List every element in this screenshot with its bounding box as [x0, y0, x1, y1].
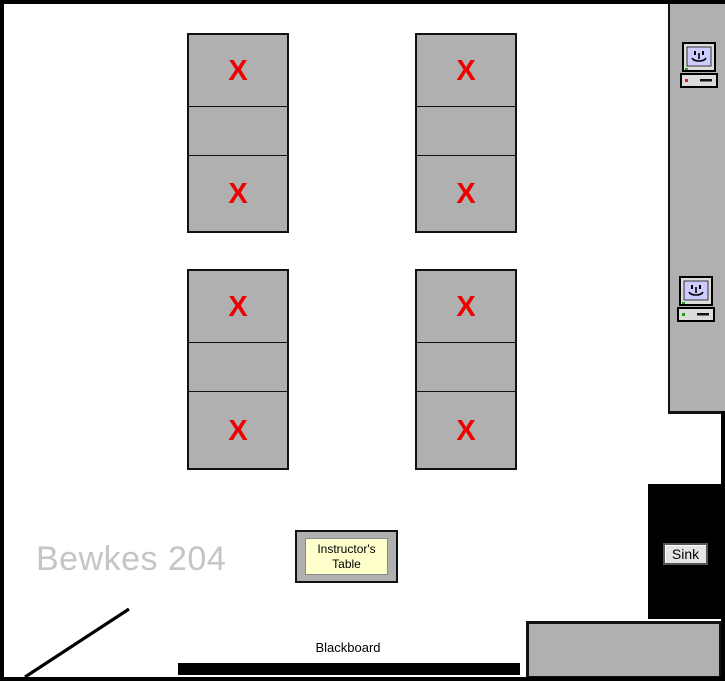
wall-bottom: [0, 677, 725, 681]
seat: X: [189, 35, 287, 107]
room-floor-plan: X X X X X X X X: [0, 0, 725, 681]
room-name-label: Bewkes 204: [36, 540, 226, 579]
wall-top: [0, 0, 725, 4]
instructor-table: Instructor's Table: [295, 530, 398, 583]
wall-left: [0, 0, 4, 681]
classic-mac-icon: [677, 276, 715, 323]
seat: [189, 343, 287, 392]
sink-label: Sink: [663, 543, 708, 565]
seat-mark: X: [456, 293, 475, 322]
seat: [417, 107, 515, 156]
table-group-top-right: X X: [415, 33, 517, 233]
seat-mark: X: [228, 180, 247, 209]
computer-counter: [668, 4, 725, 414]
table-group-bottom-right: X X: [415, 269, 517, 470]
seat: X: [417, 392, 515, 468]
seat: [189, 107, 287, 156]
seat: X: [189, 271, 287, 343]
table-group-top-left: X X: [187, 33, 289, 233]
classic-mac-icon: [680, 42, 718, 89]
seat: X: [417, 271, 515, 343]
blackboard-label: Blackboard: [278, 640, 418, 655]
seat: X: [417, 156, 515, 231]
door-swing-line: [16, 600, 136, 681]
seat-mark: X: [228, 293, 247, 322]
seat-mark: X: [456, 57, 475, 86]
table-group-bottom-left: X X: [187, 269, 289, 470]
bottom-counter: [526, 621, 722, 679]
seat-mark: X: [228, 417, 247, 446]
seat-mark: X: [456, 180, 475, 209]
seat: X: [189, 392, 287, 468]
seat-mark: X: [456, 417, 475, 446]
seat-mark: X: [228, 57, 247, 86]
blackboard: [178, 663, 520, 675]
seat: X: [417, 35, 515, 107]
seat: X: [189, 156, 287, 231]
instructor-table-label: Instructor's Table: [305, 538, 388, 575]
wall-right: [721, 411, 725, 681]
seat: [417, 343, 515, 392]
